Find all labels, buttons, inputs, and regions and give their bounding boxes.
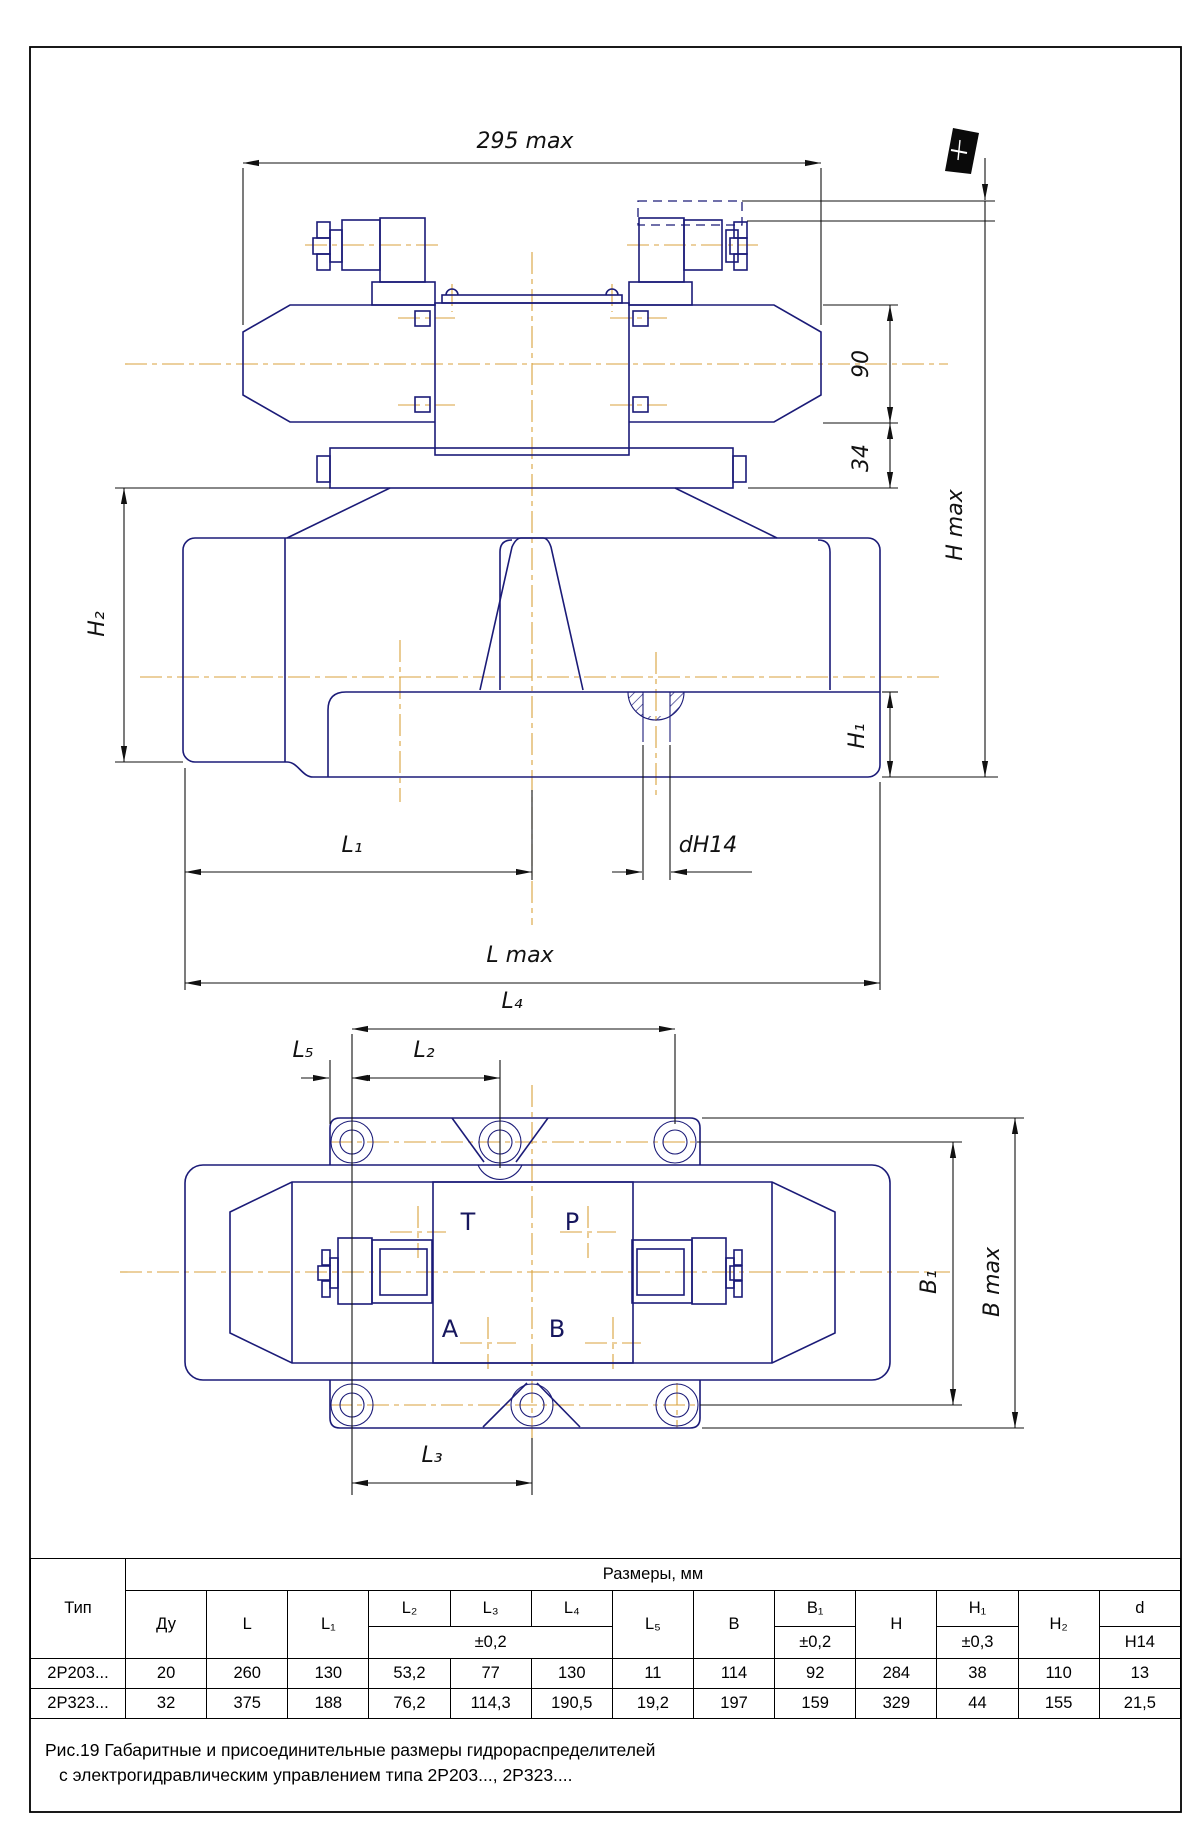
tolerance-b1: ±0,2 (775, 1627, 856, 1659)
right-connector (638, 201, 747, 282)
dim-l5: L₅ (292, 1038, 313, 1063)
col-header-type: Тип (31, 1559, 126, 1659)
port-label-a: A (442, 1315, 459, 1343)
corner-mark-icon (945, 128, 979, 174)
cell-b1-1: 159 (775, 1689, 856, 1719)
right-solenoid-cap (629, 282, 692, 305)
top-right-solenoid (632, 1238, 742, 1304)
tolerance-l: ±0,2 (369, 1627, 612, 1659)
dim-l3: L₃ (421, 1443, 442, 1468)
dim-34: 34 (849, 444, 874, 472)
left-solenoid-cap (372, 282, 435, 305)
col-header-h: H (856, 1591, 937, 1659)
col-header-b1: B₁ (775, 1591, 856, 1627)
cell-l5-0: 11 (612, 1659, 693, 1689)
dim-90: 90 (849, 350, 874, 378)
col-header-h2: H₂ (1018, 1591, 1099, 1659)
sheet-frame (30, 47, 1181, 1812)
cell-h-1: 329 (856, 1689, 937, 1719)
dim-dh14: dH14 (679, 833, 738, 858)
col-header-l: L (207, 1591, 288, 1659)
dimensions-table: Тип Размеры, мм Ду L L₁ L₂ L₃ L₄ L₅ B B₁… (30, 1558, 1181, 1719)
cell-h2-1: 155 (1018, 1689, 1099, 1719)
top-centerlines (120, 1085, 950, 1442)
cell-l-0: 260 (207, 1659, 288, 1689)
dim-lmax: L max (486, 943, 554, 968)
cell-l2-0: 53,2 (369, 1659, 450, 1689)
col-header-l2: L₂ (369, 1591, 450, 1627)
cell-du-0: 20 (126, 1659, 207, 1689)
dim-bmax: B max (980, 1246, 1005, 1317)
table-row: 2Р323... 32 375 188 76,2 114,3 190,5 19,… (31, 1689, 1181, 1719)
port-label-b: B (549, 1315, 565, 1343)
top-body (185, 1118, 890, 1428)
front-view: 295 max H max 90 34 H₂ H₁ (85, 129, 998, 990)
cell-l4-1: 190,5 (531, 1689, 612, 1719)
cell-type-0: 2Р203... (31, 1659, 126, 1689)
col-header-b: B (693, 1591, 774, 1659)
tolerance-h1: ±0,3 (937, 1627, 1018, 1659)
dim-h1: H₁ (845, 723, 870, 748)
caption-line2: с электрогидравлическим управлением типа… (45, 1763, 945, 1788)
dim-l4: L₄ (501, 989, 522, 1014)
tolerance-d: H14 (1099, 1627, 1180, 1659)
cell-l4-0: 130 (531, 1659, 612, 1689)
port-label-p: P (565, 1208, 579, 1236)
cell-b1-0: 92 (775, 1659, 856, 1689)
cell-l3-0: 77 (450, 1659, 531, 1689)
cell-type-1: 2Р323... (31, 1689, 126, 1719)
col-header-l3: L₃ (450, 1591, 531, 1627)
cell-du-1: 32 (126, 1689, 207, 1719)
cell-h1-1: 44 (937, 1689, 1018, 1719)
drawing-canvas: 295 max H max 90 34 H₂ H₁ (0, 0, 1203, 1827)
col-header-l5: L₅ (612, 1591, 693, 1659)
cell-l5-1: 19,2 (612, 1689, 693, 1719)
dim-b1: B₁ (917, 1270, 942, 1294)
col-header-l4: L₄ (531, 1591, 612, 1627)
top-view: T P A B L₄ L₅ L₂ L₃ B₁ (120, 989, 1024, 1495)
top-dimensions: L₄ L₅ L₂ L₃ B₁ B max (292, 989, 1024, 1495)
col-header-d: d (1099, 1591, 1180, 1627)
cell-l3-1: 114,3 (450, 1689, 531, 1719)
cell-d-1: 21,5 (1099, 1689, 1180, 1719)
cell-l-1: 375 (207, 1689, 288, 1719)
dim-h2: H₂ (85, 611, 110, 637)
table-title: Размеры, мм (126, 1559, 1181, 1591)
front-dimensions: 295 max H max 90 34 H₂ H₁ (85, 129, 998, 990)
col-header-h1: H₁ (937, 1591, 1018, 1627)
table-row: 2Р203... 20 260 130 53,2 77 130 11 114 9… (31, 1659, 1181, 1689)
alternate-connector-position (638, 201, 742, 225)
cell-b-1: 197 (693, 1689, 774, 1719)
left-connector (313, 218, 425, 282)
dim-l1: L₁ (341, 833, 362, 858)
front-centerlines (125, 245, 948, 925)
dim-hmax: H max (943, 488, 968, 560)
port-label-t: T (460, 1208, 476, 1236)
cell-h-0: 284 (856, 1659, 937, 1689)
subplate (328, 692, 880, 777)
cell-d-0: 13 (1099, 1659, 1180, 1689)
cell-l1-1: 188 (288, 1689, 369, 1719)
col-header-du: Ду (126, 1591, 207, 1659)
drawing-sheet: 295 max H max 90 34 H₂ H₁ (0, 0, 1203, 1827)
cell-l1-0: 130 (288, 1659, 369, 1689)
dim-l2: L₂ (413, 1038, 434, 1063)
caption-line1: Рис.19 Габаритные и присоединительные ра… (45, 1738, 945, 1763)
cell-l2-1: 76,2 (369, 1689, 450, 1719)
top-left-solenoid (318, 1238, 432, 1304)
figure-caption: Рис.19 Габаритные и присоединительные ра… (45, 1738, 945, 1788)
col-header-l1: L₁ (288, 1591, 369, 1659)
dim-295max: 295 max (477, 129, 575, 154)
cell-h2-0: 110 (1018, 1659, 1099, 1689)
cell-h1-0: 38 (937, 1659, 1018, 1689)
cell-b-0: 114 (693, 1659, 774, 1689)
bottom-lug-strip (330, 1380, 700, 1428)
